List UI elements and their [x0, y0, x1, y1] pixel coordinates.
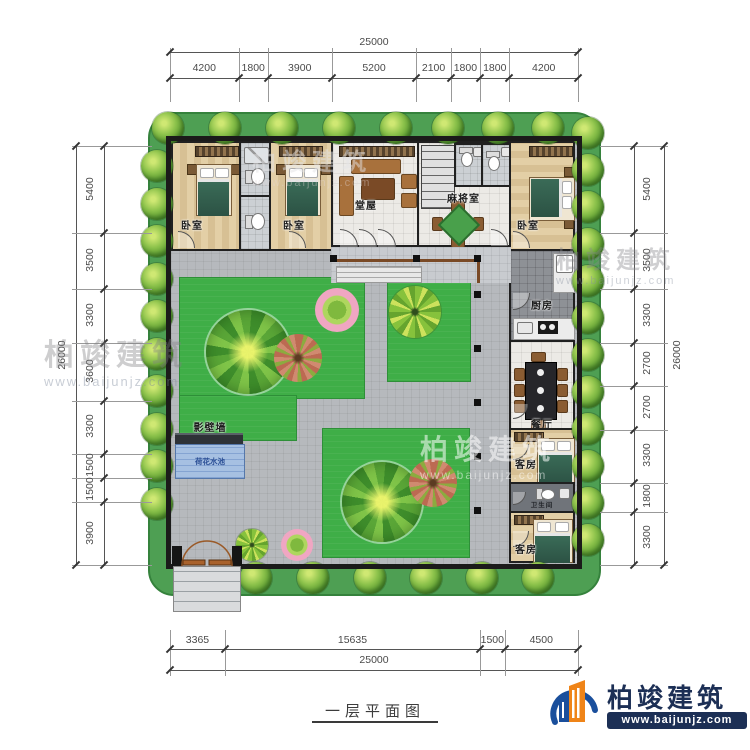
sink-icon	[559, 488, 570, 499]
tree-icon	[209, 112, 241, 144]
tree-icon	[572, 487, 604, 519]
armchair-icon	[401, 193, 417, 208]
bed-icon	[196, 164, 232, 216]
room-bedroom-2: 卧室	[269, 141, 333, 251]
dim-label: 25000	[334, 36, 414, 48]
dim-extension	[72, 565, 152, 566]
tree-icon	[152, 112, 184, 144]
room-dining: 餐厅	[509, 340, 575, 430]
door-swing-icon	[340, 229, 358, 247]
tree-icon	[266, 112, 298, 144]
tree-icon	[432, 112, 464, 144]
cabinet-icon	[339, 146, 415, 157]
door-swing-icon	[359, 229, 377, 247]
room-label: 麻将室	[447, 190, 480, 205]
room-label: 卫生间	[511, 499, 573, 509]
room-label: 卧室	[181, 217, 203, 232]
tree-icon	[141, 488, 173, 520]
screen-wall-label: 影壁墙	[176, 419, 244, 434]
toilet-icon	[251, 168, 265, 185]
room-label: 堂屋	[355, 197, 377, 212]
railing	[333, 259, 480, 262]
room-bath-small-2	[481, 143, 511, 187]
palm-tree-icon	[389, 286, 441, 338]
brand-logo-icon	[545, 676, 603, 730]
dim-label: 25000	[334, 654, 414, 666]
tree-icon	[141, 300, 173, 332]
dim-line	[170, 670, 578, 671]
door-swing-icon	[378, 229, 396, 247]
dim-label: 3500	[641, 230, 653, 290]
sofa-icon	[339, 176, 354, 216]
tree-icon	[572, 376, 604, 408]
dim-label: 26000	[56, 325, 68, 385]
tree-icon	[141, 188, 173, 220]
dim-label: 3365	[167, 634, 227, 646]
dim-line	[664, 146, 665, 565]
nightstand-icon	[321, 164, 331, 175]
tree-icon	[297, 562, 329, 594]
red-tree-icon	[274, 334, 322, 382]
room-label: 卧室	[283, 217, 305, 232]
tree-icon	[572, 524, 604, 556]
dim-line	[170, 649, 578, 650]
lotus-pond-label: 荷花水池	[176, 456, 244, 467]
tree-icon	[572, 302, 604, 334]
door-swing-icon	[513, 231, 530, 248]
dim-line	[170, 78, 578, 79]
dim-label: 5400	[641, 159, 653, 219]
title-underline	[312, 721, 438, 723]
railing	[477, 259, 480, 283]
wardrobe-icon	[195, 146, 239, 157]
room-guest-2: 客房	[509, 511, 575, 563]
bed-icon	[285, 164, 321, 216]
door-swing-icon	[491, 229, 508, 246]
shower-icon	[244, 147, 269, 164]
chair-icon	[557, 368, 568, 381]
wardrobe-icon	[529, 146, 573, 157]
dim-extension	[72, 146, 152, 147]
bed-icon	[529, 177, 575, 221]
room-bath-small-1	[454, 143, 483, 187]
dim-label: 4500	[511, 634, 571, 646]
pink-tree-icon	[281, 529, 313, 561]
tree-icon	[141, 375, 173, 407]
column-post	[474, 399, 481, 406]
chair-icon	[514, 384, 525, 397]
tree-icon	[141, 150, 173, 182]
tree-icon	[323, 112, 355, 144]
dim-label: 5200	[344, 62, 404, 74]
floor-plan-canvas: 影壁墙 荷花水池 卧室 卧室	[0, 0, 750, 750]
room-bedroom-3: 卧室	[509, 141, 575, 251]
tree-icon	[572, 191, 604, 223]
door-swing-icon	[178, 231, 195, 248]
armchair-icon	[401, 174, 417, 189]
column-post	[413, 255, 420, 262]
tree-icon	[572, 339, 604, 371]
sofa-icon	[351, 159, 401, 174]
chair-icon	[531, 352, 546, 362]
mahjong-table-icon	[438, 204, 480, 246]
dim-label: 3300	[84, 285, 96, 345]
tree-icon	[532, 112, 564, 144]
dim-label: 5400	[84, 159, 96, 219]
brand-url: www.baijunjz.com	[607, 712, 747, 729]
tree-icon	[466, 562, 498, 594]
tree-icon	[572, 117, 604, 149]
chair-icon	[557, 400, 568, 413]
stove-icon	[538, 321, 558, 334]
dim-label: 3300	[641, 507, 653, 567]
dim-label: 15635	[322, 634, 382, 646]
column-post	[474, 453, 481, 460]
veranda	[331, 247, 511, 283]
partition-wall	[241, 195, 269, 197]
column-post	[330, 255, 337, 262]
entry-steps	[336, 266, 422, 283]
room-label: 客房	[515, 456, 537, 471]
red-tree-icon	[409, 459, 457, 507]
tree-icon	[410, 562, 442, 594]
bed-icon	[533, 519, 573, 563]
room-mahjong: 麻将室	[417, 141, 511, 247]
room-label: 客房	[515, 541, 537, 556]
tree-icon	[572, 154, 604, 186]
column-post	[474, 507, 481, 514]
tree-icon	[141, 225, 173, 257]
room-bath-strip	[239, 141, 271, 251]
lotus-pond: 荷花水池	[175, 444, 245, 479]
entrance-steps	[173, 566, 241, 612]
room-label: 卧室	[517, 217, 539, 232]
column-post	[474, 291, 481, 298]
room-guest-bath: 卫生间	[509, 482, 575, 513]
brand-name: 柏竣建筑	[607, 678, 727, 715]
tree-icon	[141, 413, 173, 445]
tree-icon	[522, 562, 554, 594]
dining-table-icon	[525, 362, 557, 420]
dim-label: 3900	[84, 503, 96, 563]
room-hall: 堂屋	[331, 141, 419, 247]
tree-icon	[240, 562, 272, 594]
room-bedroom-1: 卧室	[171, 141, 241, 251]
bed-icon	[537, 438, 575, 484]
dim-line	[634, 146, 635, 565]
gate-doors-icon	[180, 538, 234, 566]
dim-label: 3500	[84, 230, 96, 290]
column-post	[474, 345, 481, 352]
toilet-icon	[251, 213, 265, 230]
dim-label: 26000	[671, 325, 683, 385]
drawing-title: 一层平面图	[300, 700, 450, 721]
dim-label: 3600	[84, 341, 96, 401]
room-kitchen: 厨房	[509, 249, 575, 342]
chair-icon	[557, 384, 568, 397]
brand-logo: 柏竣建筑 www.baijunjz.com	[545, 676, 750, 736]
dim-line	[170, 52, 578, 53]
wardrobe-icon	[279, 146, 323, 157]
tree-icon	[380, 112, 412, 144]
chair-icon	[514, 368, 525, 381]
dim-label: 3900	[270, 62, 330, 74]
tree-icon	[572, 265, 604, 297]
column-post	[474, 255, 481, 262]
tree-icon	[572, 450, 604, 482]
dim-label: 4200	[514, 62, 574, 74]
tree-icon	[354, 562, 386, 594]
fridge-icon	[556, 255, 573, 273]
tree-icon	[482, 112, 514, 144]
pink-tree-icon	[315, 288, 359, 332]
sink-icon	[517, 322, 533, 334]
door-swing-icon	[289, 231, 306, 248]
room-guest-1: 客房	[509, 428, 575, 484]
room-label: 厨房	[511, 297, 573, 312]
